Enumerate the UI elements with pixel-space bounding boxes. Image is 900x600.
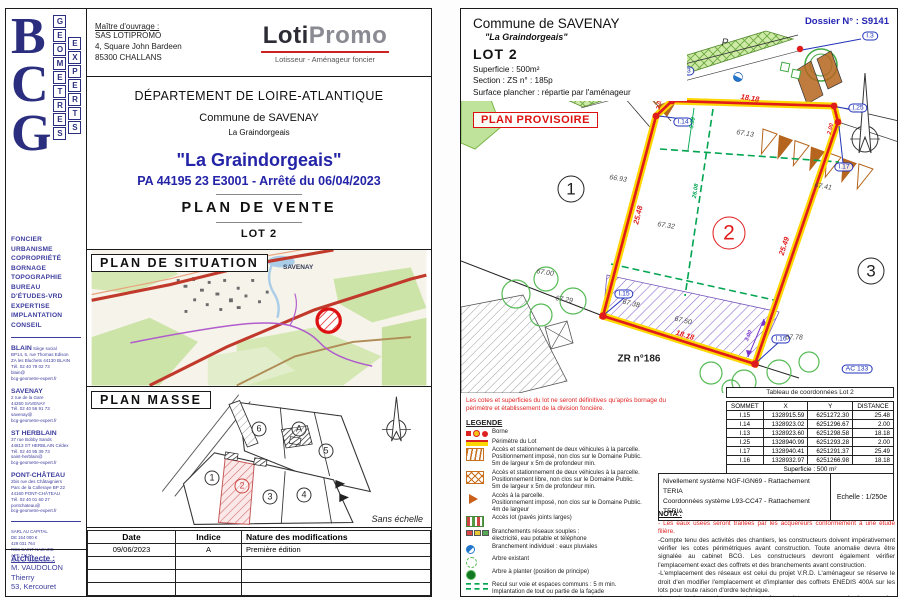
rule: [216, 222, 302, 223]
left-header: Maître d'ouvrage : SAS LOTIPROMO4, Squar…: [87, 9, 431, 77]
mod-cell: [88, 582, 176, 595]
office-line: bcg-geometre-expert.fr: [11, 376, 83, 382]
place-title: La Graindorgeais: [87, 128, 431, 137]
arbre2-icon: [466, 570, 476, 580]
commune-title: Commune de SAVENAY: [87, 112, 431, 124]
mod-cell: [242, 569, 431, 582]
office-name: ST HERBLAIN: [11, 430, 83, 437]
rp-superficie: Superficie : 500m²: [473, 65, 681, 74]
coord-table-title: Tableau de coordonnées Lot 2: [726, 387, 894, 398]
service-item: BORNAGE: [11, 264, 83, 274]
page-left: BCG GEOMETRES EXPERTS FONCIERURBANISMECO…: [5, 8, 432, 597]
coord-cell: 6251266.98: [808, 456, 853, 465]
legend-item: Branchement individuel : eaux pluviales: [466, 544, 686, 554]
legend-text: Branchement individuel : eaux pluviales: [492, 544, 597, 551]
legend-text: Périmètre du Lot: [492, 439, 536, 446]
office-name: PONT-CHÂTEAU: [11, 472, 83, 479]
rp-surface: Surface plancher : répartie par l'aménag…: [473, 88, 681, 97]
bcg-col-geometres: GEOMETRES: [53, 15, 66, 221]
legend-icon-wrap: [466, 530, 492, 537]
architect-lines: M. VAUDOLON Thierry53, Kercouret: [11, 563, 84, 592]
recul-icon: [466, 583, 489, 590]
nota-line: - Les eaux usées seront traitées par les…: [658, 520, 895, 537]
nivellement-line: Nivellement système NGF-IGN69 - Rattache…: [663, 477, 826, 497]
scale-note: Sans échelle: [371, 514, 423, 524]
bcg-box-letter: T: [53, 85, 66, 98]
coord-cell: 25.48: [853, 411, 894, 420]
plot-annotation: I.17: [834, 163, 853, 172]
masse-lot-number: 6: [252, 421, 267, 436]
legend-text: Recul sur voie et espaces communs : 5 m …: [492, 582, 616, 597]
office-line: bcg-geometre-expert.fr: [11, 508, 83, 514]
bcg-box-letter: E: [68, 79, 81, 92]
rule: [216, 194, 302, 195]
legend-item: Borne: [466, 429, 686, 437]
legend-icon-wrap: [466, 440, 492, 446]
legend-text: Accès lot (pavés joints larges): [492, 515, 572, 522]
coord-cell: 25.49: [853, 447, 894, 456]
paves-icon: [466, 516, 484, 527]
bcg-letter: B: [11, 13, 51, 61]
mod-row: [88, 582, 431, 595]
legend-item: Accès lot (pavés joints larges): [466, 515, 686, 527]
coord-cell: 2.00: [853, 420, 894, 429]
hatchx-icon: [466, 471, 484, 484]
coord-cell: 18.18: [853, 429, 894, 438]
plan-de-vente-title: PLAN DE VENTE: [87, 200, 431, 216]
plan-situation-panel: PLAN DE SITUATION SAVENAY: [87, 250, 431, 386]
document-canvas: BCG GEOMETRES EXPERTS FONCIERURBANISMECO…: [0, 0, 900, 600]
legend-icon-wrap: [466, 430, 492, 437]
service-item: URBANISME: [11, 245, 83, 255]
logo-underline: [261, 51, 389, 53]
divider: [11, 337, 81, 338]
dept-title: DÉPARTEMENT DE LOIRE-ATLANTIQUE: [87, 89, 431, 103]
masse-lot-number: 4: [297, 487, 312, 502]
rp-lot-title: LOT 2: [473, 46, 681, 62]
legend-text: Accès et stationnement de deux véhicules…: [492, 470, 640, 491]
bcg-col-experts: EXPERTS: [68, 15, 81, 221]
plot-annotation: P: [722, 38, 729, 49]
service-item: COPROPRIÉTÉ: [11, 254, 83, 264]
plot-annotation: I.15: [614, 290, 633, 299]
office-line: bcg-geometre-expert.fr: [11, 460, 83, 466]
coord-cell: 2.00: [853, 438, 894, 447]
legend-item: Accès et stationnement de deux véhicules…: [466, 447, 686, 468]
legend-text: Accès et stationnement de deux véhicules…: [492, 447, 642, 468]
eaux-icon: [466, 545, 475, 554]
modifications-table: Date Indice Nature des modifications 09/…: [87, 528, 431, 596]
offices-list: BLAIN Siège socialBP14, 5, rue Thomas Ed…: [11, 345, 83, 514]
divider: [11, 521, 81, 522]
architect-line: 53, Kercouret: [11, 582, 84, 592]
bcg-box-letter: E: [53, 113, 66, 126]
service-item: CONSEIL: [11, 321, 83, 331]
legend-item: Accès à la parcelle. Positionnement impo…: [466, 493, 686, 514]
pa-reference: PA 44195 23 E3001 - Arrêté du 06/04/2023: [87, 174, 431, 188]
architect-line: M. VAUDOLON Thierry: [11, 563, 84, 583]
bcg-box-letter: E: [68, 37, 81, 50]
lotipromo-logo: LotiPromo Lotisseur - Aménageur foncier: [245, 22, 423, 64]
bcg-logo: BCG GEOMETRES EXPERTS: [11, 13, 83, 221]
bcg-box-letter: S: [68, 121, 81, 134]
rp-commune: Commune de SAVENAY: [473, 16, 681, 31]
bcg-box-letter: M: [53, 57, 66, 70]
map-town-label: SAVENAY: [283, 264, 313, 271]
office-block: ST HERBLAIN37 rue Bobby Sands44813 ST HE…: [11, 430, 83, 466]
coord-table-block: Tableau de coordonnées Lot 2 SOMMET X Y …: [726, 387, 894, 474]
coord-cell: 6251296.67: [808, 420, 853, 429]
plot-annotation: 2: [713, 217, 746, 250]
plot-annotation: I.3: [862, 32, 878, 41]
coord-row: I.151328915.596251272.3025.48: [727, 411, 894, 420]
left-main: Maître d'ouvrage : SAS LOTIPROMO4, Squar…: [87, 9, 431, 596]
coord-cell: 1328923.02: [763, 420, 808, 429]
legend-item: Périmètre du Lot: [466, 439, 686, 446]
nota-title: NOTA :: [658, 509, 895, 518]
service-item: IMPLANTATION: [11, 311, 83, 321]
lotipromo-wordmark: LotiPromo: [245, 22, 405, 50]
legende-title: LEGENDE: [466, 418, 686, 427]
plot-annotation: I.25: [848, 104, 867, 113]
bcg-letter: G: [11, 110, 51, 158]
mod-cell: [242, 582, 431, 595]
service-item: FONCIER: [11, 235, 83, 245]
mod-cell: 09/06/2023: [88, 543, 176, 556]
coord-header-row: SOMMET X Y DISTANCE: [727, 402, 894, 411]
bcg-box-letter: R: [53, 99, 66, 112]
masse-lot-number: 5: [319, 443, 334, 458]
legend-icon-wrap: [466, 557, 492, 568]
mod-cell: [176, 582, 242, 595]
page-right: Commune de SAVENAY "La Graindorgeais" LO…: [460, 8, 898, 597]
coord-cell: 1328915.59: [763, 411, 808, 420]
bcg-letter: C: [11, 61, 51, 109]
mod-row: [88, 556, 431, 569]
bcg-box-letter: O: [53, 43, 66, 56]
coord-cell: 1328940.41: [763, 447, 808, 456]
legend-icon-wrap: [466, 570, 492, 580]
col-sommet: SOMMET: [727, 402, 764, 411]
borne-icon: [466, 430, 488, 437]
bcg-box-letter: T: [68, 107, 81, 120]
service-item: BUREAU: [11, 283, 83, 293]
legend-text: Borne: [492, 429, 508, 436]
coord-cell: 1328923.60: [763, 429, 808, 438]
bcg-box-letter: E: [53, 71, 66, 84]
plot-annotation: 1: [558, 176, 585, 203]
col-distance: DISTANCE: [853, 402, 894, 411]
coord-cell: 6251272.30: [808, 411, 853, 420]
title-block: DÉPARTEMENT DE LOIRE-ATLANTIQUE Commune …: [87, 77, 431, 250]
services-list: FONCIERURBANISMECOPROPRIÉTÉBORNAGETOPOGR…: [11, 235, 83, 330]
legend-item: Arbre existant: [466, 556, 686, 568]
arbre1-icon: [466, 557, 477, 568]
bcg-box-letter: E: [53, 29, 66, 42]
coord-cell: 18.18: [853, 456, 894, 465]
plot-annotation: ZR n°186: [618, 354, 661, 365]
nota-block: NOTA : - Les eaux usées seront traitées …: [658, 509, 895, 597]
legend-text: Branchements réseaux souples : électrici…: [492, 529, 587, 543]
coord-cell: I.25: [727, 438, 764, 447]
legend-icon-wrap: [466, 545, 492, 554]
office-name: BLAIN Siège social: [11, 345, 83, 352]
coord-cell: 6251291.37: [808, 447, 853, 456]
legend-icon-wrap: [466, 448, 492, 461]
legend-item: Recul sur voie et espaces communs : 5 m …: [466, 582, 686, 597]
plan-masse-title: PLAN MASSE: [91, 391, 211, 409]
project-title: "La Graindorgeais": [87, 150, 431, 171]
coord-cell: I.15: [727, 411, 764, 420]
legend-icon-wrap: [466, 583, 492, 590]
mod-row: [88, 569, 431, 582]
mod-cell: A: [176, 543, 242, 556]
rp-section: Section : ZS n° : 185p: [473, 76, 681, 85]
bcg-box-letter: S: [53, 127, 66, 140]
legend-item: Accès et stationnement de deux véhicules…: [466, 470, 686, 491]
legend-text: Arbre existant: [492, 556, 529, 563]
masse-lot-number: A: [292, 421, 307, 436]
mod-cell: [242, 556, 431, 569]
bcg-box-letter: P: [68, 65, 81, 78]
logo-tagline: Lotisseur - Aménageur foncier: [245, 55, 405, 64]
col-y: Y: [808, 402, 853, 411]
nota-items: - Les eaux usées seront traitées par les…: [658, 520, 895, 597]
coord-cell: 1328932.97: [763, 456, 808, 465]
plan-provisoire-badge: PLAN PROVISOIRE: [473, 112, 598, 128]
client-block: Maître d'ouvrage : SAS LOTIPROMO4, Squar…: [95, 22, 245, 63]
coord-table-body: I.151328915.596251272.3025.48I.141328923…: [727, 411, 894, 465]
architect-block: Architecte : M. VAUDOLON Thierry53, Kerc…: [6, 549, 86, 596]
rp-place: "La Graindorgeais": [485, 32, 681, 42]
masse-lot-number: 2: [235, 478, 250, 493]
mod-cell: [176, 569, 242, 582]
right-header: Commune de SAVENAY "La Graindorgeais" LO…: [461, 9, 687, 101]
mod-table-header-row: Date Indice Nature des modifications: [88, 530, 431, 543]
service-item: TOPOGRAPHIE: [11, 273, 83, 283]
coord-row: I.141328923.026251296.672.00: [727, 420, 894, 429]
legend-icon-wrap: [466, 494, 492, 504]
nota-line: -Les plantations existantes doivent être…: [658, 595, 895, 597]
mod-cell: Première édition: [242, 543, 431, 556]
coord-cell: 6251298.58: [808, 429, 853, 438]
legend-text: Accès à la parcelle. Positionnement impo…: [492, 493, 642, 514]
col-x: X: [763, 402, 808, 411]
legend-text: Arbre à planter (position de principe): [492, 569, 589, 576]
nota-line: -Compte tenu des activités des chantiers…: [658, 537, 895, 570]
mod-table-el: Date Indice Nature des modifications 09/…: [87, 530, 431, 596]
architect-label: Architecte :: [11, 554, 84, 563]
col-nature: Nature des modifications: [242, 530, 431, 543]
bcg-box-letter: G: [53, 15, 66, 28]
perim-icon: [466, 440, 488, 446]
coord-row: I.161328932.976251266.9818.18: [727, 456, 894, 465]
red-disclaimer: Les cotes et superficies du lot ne seron…: [466, 397, 678, 413]
lot-title: LOT 2: [87, 228, 431, 240]
sidebar: BCG GEOMETRES EXPERTS FONCIERURBANISMECO…: [6, 9, 87, 596]
client-line: 85300 CHALLANS: [95, 53, 245, 64]
coord-row: I.131328923.606251298.5818.18: [727, 429, 894, 438]
logo-bold: Loti: [263, 22, 309, 49]
hatchv-icon: [466, 448, 484, 461]
client-label: Maître d'ouvrage :: [95, 22, 245, 31]
arrow-icon: [469, 494, 478, 504]
service-item: EXPERTISE: [11, 302, 83, 312]
office-name: SAVENAY: [11, 388, 83, 395]
coord-cell: I.16: [727, 456, 764, 465]
office-block: BLAIN Siège socialBP14, 5, rue Thomas Ed…: [11, 345, 83, 381]
client-line: SAS LOTIPROMO: [95, 31, 245, 42]
branchements-icon: [466, 530, 489, 537]
bcg-box-letter: X: [68, 51, 81, 64]
bcg-logo-boxes: GEOMETRES EXPERTS: [53, 13, 81, 221]
mod-cell: [88, 556, 176, 569]
office-block: PONT-CHÂTEAU2bis rue des ChâtaigniersPar…: [11, 472, 83, 514]
legende-items: BornePérimètre du LotAccès et stationnem…: [466, 429, 686, 597]
mod-cell: [176, 556, 242, 569]
plot-annotation: 3: [858, 258, 885, 285]
bcg-box-letter: R: [68, 93, 81, 106]
mod-row: 09/06/2023APremière édition: [88, 543, 431, 556]
office-block: SAVENAY2 rue de la Gare44260 SAVENAYTél.…: [11, 388, 83, 424]
mod-cell: [88, 569, 176, 582]
logo-light: Promo: [309, 22, 388, 49]
coord-cell: I.17: [727, 447, 764, 456]
coord-cell: I.13: [727, 429, 764, 438]
coord-row: I.171328940.416251291.3725.49: [727, 447, 894, 456]
coord-cell: 6251293.28: [808, 438, 853, 447]
plan-situation-title: PLAN DE SITUATION: [91, 254, 268, 272]
plot-annotation: 67.78: [785, 335, 803, 342]
service-item: D'ÉTUDES-VRD: [11, 292, 83, 302]
col-indice: Indice: [176, 530, 242, 543]
coord-table: SOMMET X Y DISTANCE I.151328915.59625127…: [726, 401, 894, 474]
coord-cell: I.14: [727, 420, 764, 429]
legend-icon-wrap: [466, 516, 492, 527]
legend-item: Arbre à planter (position de principe): [466, 569, 686, 580]
legend-icon-wrap: [466, 471, 492, 484]
masse-lot-number: 1: [205, 470, 220, 485]
office-line: bcg-geometre-expert.fr: [11, 418, 83, 424]
mod-table-body: 09/06/2023APremière édition: [88, 543, 431, 595]
legende-block: LEGENDE BornePérimètre du LotAccès et st…: [466, 418, 686, 597]
coord-cell: 1328940.99: [763, 438, 808, 447]
plot-annotation: AC 133: [842, 365, 873, 374]
bcg-logo-letters: BCG: [11, 13, 51, 221]
dossier-number: Dossier N° : S9141: [802, 15, 892, 28]
masse-lot-number: 3: [263, 489, 278, 504]
client-line: 4, Square John Bardeen: [95, 42, 245, 53]
nota-line: -L'emplacement des réseaux est celui du …: [658, 570, 895, 595]
coord-row: I.251328940.996251293.282.00: [727, 438, 894, 447]
legend-item: Branchements réseaux souples : électrici…: [466, 529, 686, 543]
col-date: Date: [88, 530, 176, 543]
client-lines: SAS LOTIPROMO4, Square John Bardeen85300…: [95, 31, 245, 63]
plan-masse-panel: PLAN MASSE Sans échelle: [87, 387, 431, 528]
